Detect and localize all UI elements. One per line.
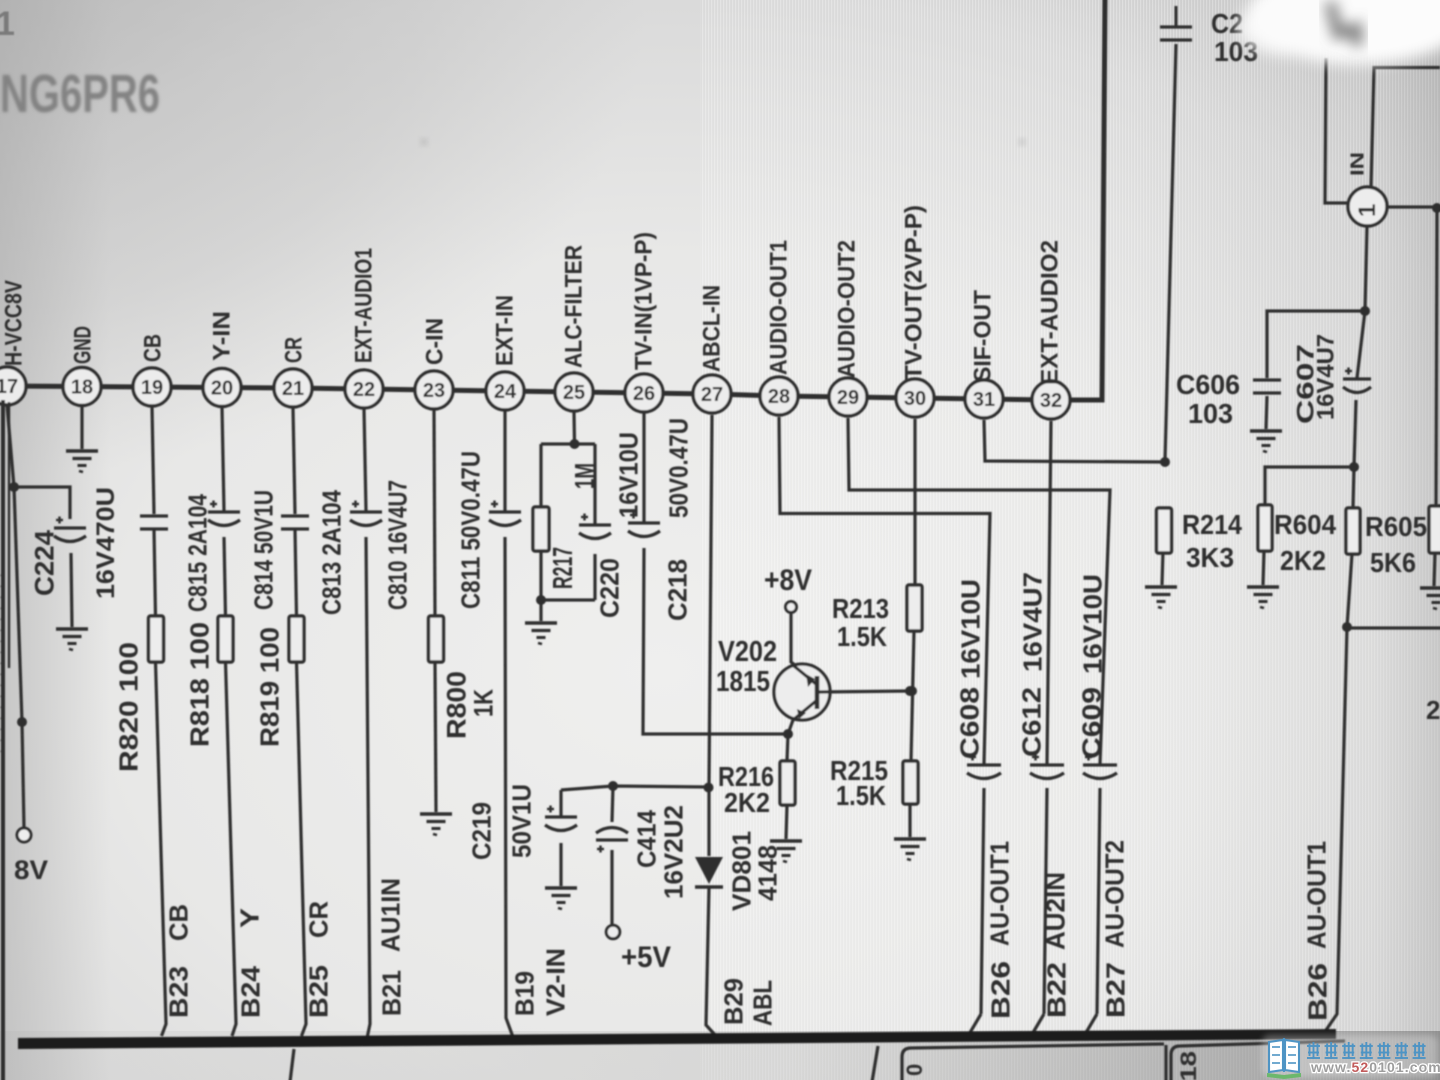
svg-text:018: 018 xyxy=(1176,1051,1201,1080)
svg-text:16V470U: 16V470U xyxy=(92,487,120,599)
svg-text:ABL: ABL xyxy=(747,980,777,1026)
svg-text:V202: V202 xyxy=(718,636,777,668)
svg-text:CR: CR xyxy=(303,901,333,938)
svg-text:+5V: +5V xyxy=(621,941,671,974)
svg-text:2(: 2( xyxy=(1426,695,1440,725)
svg-text:R819 100: R819 100 xyxy=(254,627,284,747)
svg-text:5K6: 5K6 xyxy=(1370,547,1416,578)
svg-text:C219: C219 xyxy=(466,802,496,860)
svg-text:AUDIO-OUT1: AUDIO-OUT1 xyxy=(766,240,793,375)
svg-text:AU-OUT1: AU-OUT1 xyxy=(1301,841,1331,949)
svg-text:C2: C2 xyxy=(1211,8,1243,39)
svg-text:B25: B25 xyxy=(303,965,333,1018)
svg-text:R213: R213 xyxy=(832,593,889,624)
svg-text:AU2IN: AU2IN xyxy=(1040,872,1070,950)
svg-text:27: 27 xyxy=(701,384,723,406)
svg-text:18: 18 xyxy=(71,377,93,399)
svg-text:TV-OUT(2VP-P): TV-OUT(2VP-P) xyxy=(901,205,928,380)
svg-text:ABCL-IN: ABCL-IN xyxy=(699,285,726,372)
svg-text:C220: C220 xyxy=(594,558,624,618)
svg-text:EXT-IN: EXT-IN xyxy=(492,295,519,366)
svg-text:31: 31 xyxy=(973,389,995,411)
svg-text:AU1IN: AU1IN xyxy=(375,878,405,952)
svg-text:B23: B23 xyxy=(163,966,193,1018)
svg-text:B21: B21 xyxy=(376,970,406,1016)
svg-text:C606: C606 xyxy=(1176,369,1240,400)
svg-text:R604: R604 xyxy=(1274,509,1336,540)
svg-text:B27: B27 xyxy=(1100,962,1130,1018)
svg-text:29: 29 xyxy=(837,387,859,409)
svg-text:R818 100: R818 100 xyxy=(184,622,214,747)
svg-text:IN: IN xyxy=(1348,152,1368,176)
svg-text:+8V: +8V xyxy=(764,564,812,597)
svg-text:22: 22 xyxy=(353,379,375,401)
svg-text:26: 26 xyxy=(633,383,655,405)
svg-text:R605: R605 xyxy=(1365,511,1427,542)
svg-text:C609: C609 xyxy=(1076,687,1106,759)
svg-text:19: 19 xyxy=(141,377,163,399)
svg-text:23: 23 xyxy=(423,380,445,402)
svg-text:C-IN: C-IN xyxy=(422,318,449,365)
svg-text:1815: 1815 xyxy=(716,666,770,698)
svg-text:B26: B26 xyxy=(1302,963,1332,1021)
svg-text:SIF-OUT: SIF-OUT xyxy=(970,290,997,382)
svg-text:C224: C224 xyxy=(30,530,60,596)
svg-text:1M: 1M xyxy=(569,463,600,489)
svg-text:AUDIO-OUT2: AUDIO-OUT2 xyxy=(834,240,861,378)
svg-text:16V10U: 16V10U xyxy=(1077,574,1107,674)
svg-text:2K2: 2K2 xyxy=(724,787,770,818)
svg-text:B29: B29 xyxy=(718,978,748,1025)
svg-text:32: 32 xyxy=(1040,390,1062,412)
svg-text:GND: GND xyxy=(70,326,97,364)
svg-text:B19: B19 xyxy=(509,971,539,1016)
svg-text:16V10U: 16V10U xyxy=(613,432,643,518)
svg-text:CB: CB xyxy=(163,904,193,941)
svg-text:www.520101.com: www.520101.com xyxy=(1310,1059,1440,1075)
svg-text:C814 50V1U: C814 50V1U xyxy=(248,490,278,610)
svg-text:C815 2A104: C815 2A104 xyxy=(182,494,212,612)
svg-text:4148: 4148 xyxy=(752,845,782,901)
svg-text:1.5K: 1.5K xyxy=(837,621,887,652)
svg-text:C612: C612 xyxy=(1016,687,1046,757)
svg-text:C608: C608 xyxy=(954,687,984,759)
svg-text:R820 100: R820 100 xyxy=(113,642,143,772)
svg-text:C414: C414 xyxy=(631,809,661,868)
svg-text:AU-OUT1: AU-OUT1 xyxy=(984,841,1014,946)
svg-text:C811 50V0.47U: C811 50V0.47U xyxy=(455,451,485,609)
svg-text:1: 1 xyxy=(1354,204,1381,217)
svg-text:8V: 8V xyxy=(14,855,48,885)
svg-text:20: 20 xyxy=(211,378,233,400)
svg-text:R217: R217 xyxy=(547,547,578,589)
svg-text:50V1U: 50V1U xyxy=(506,784,536,858)
svg-text:B24: B24 xyxy=(235,965,265,1018)
svg-text:17: 17 xyxy=(0,376,18,398)
svg-text:R214: R214 xyxy=(1182,509,1242,540)
svg-text:Y: Y xyxy=(234,908,264,928)
svg-text:50V0.47U: 50V0.47U xyxy=(663,418,693,518)
svg-text:25: 25 xyxy=(563,382,585,404)
svg-text:CR: CR xyxy=(281,337,308,363)
svg-text:28: 28 xyxy=(768,386,790,408)
svg-text:21: 21 xyxy=(282,378,304,400)
svg-text:3K3: 3K3 xyxy=(1186,542,1234,573)
svg-text:0: 0 xyxy=(902,1064,927,1076)
svg-text:EXT-AUDIO2: EXT-AUDIO2 xyxy=(1037,240,1064,385)
svg-text:C810 16V4U7: C810 16V4U7 xyxy=(382,480,412,610)
svg-text:30: 30 xyxy=(904,388,926,410)
svg-text:H-VCC8V: H-VCC8V xyxy=(1,280,28,366)
svg-text:103: 103 xyxy=(1188,398,1233,429)
svg-text:C218: C218 xyxy=(662,559,692,621)
svg-text:16V4U7: 16V4U7 xyxy=(1017,572,1047,672)
svg-text:R800: R800 xyxy=(442,671,472,739)
svg-text:2K2: 2K2 xyxy=(1280,545,1326,576)
svg-text:B22: B22 xyxy=(1041,962,1071,1018)
svg-text:1.5K: 1.5K xyxy=(836,780,886,811)
svg-text:TV-IN(1VP-P): TV-IN(1VP-P) xyxy=(631,232,658,370)
svg-text:16V4U7: 16V4U7 xyxy=(1313,334,1340,420)
svg-text:1: 1 xyxy=(0,5,15,43)
svg-text:ALC-FILTER: ALC-FILTER xyxy=(561,245,588,368)
svg-text:16V10U: 16V10U xyxy=(955,579,985,679)
svg-text:C813 2A104: C813 2A104 xyxy=(316,490,346,615)
svg-text:B26: B26 xyxy=(985,961,1015,1019)
svg-text:EXT-AUDIO1: EXT-AUDIO1 xyxy=(351,248,378,363)
svg-text:V2-IN: V2-IN xyxy=(540,948,570,1016)
svg-text:Y-IN: Y-IN xyxy=(209,311,236,361)
svg-text:24: 24 xyxy=(494,381,517,403)
svg-text:16V2U2: 16V2U2 xyxy=(658,805,688,899)
svg-text:1K: 1K xyxy=(469,689,499,717)
svg-text:AU-OUT2: AU-OUT2 xyxy=(1099,840,1129,948)
svg-text:NG6PR6: NG6PR6 xyxy=(0,64,160,124)
svg-text:CB: CB xyxy=(140,334,167,362)
